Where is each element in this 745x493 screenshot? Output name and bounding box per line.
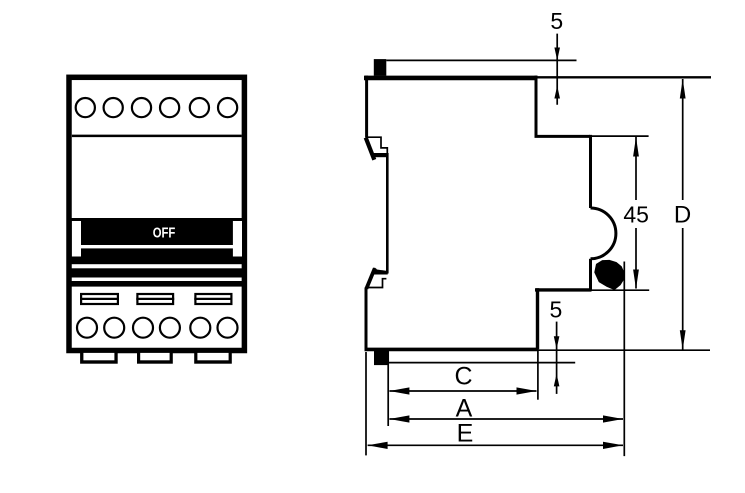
svg-text:45: 45 — [623, 202, 649, 228]
svg-text:OFF: OFF — [153, 226, 176, 242]
svg-text:D: D — [674, 202, 691, 229]
svg-text:E: E — [457, 419, 474, 447]
svg-text:5: 5 — [550, 296, 563, 322]
svg-text:5: 5 — [550, 8, 563, 34]
svg-text:C: C — [454, 363, 472, 391]
